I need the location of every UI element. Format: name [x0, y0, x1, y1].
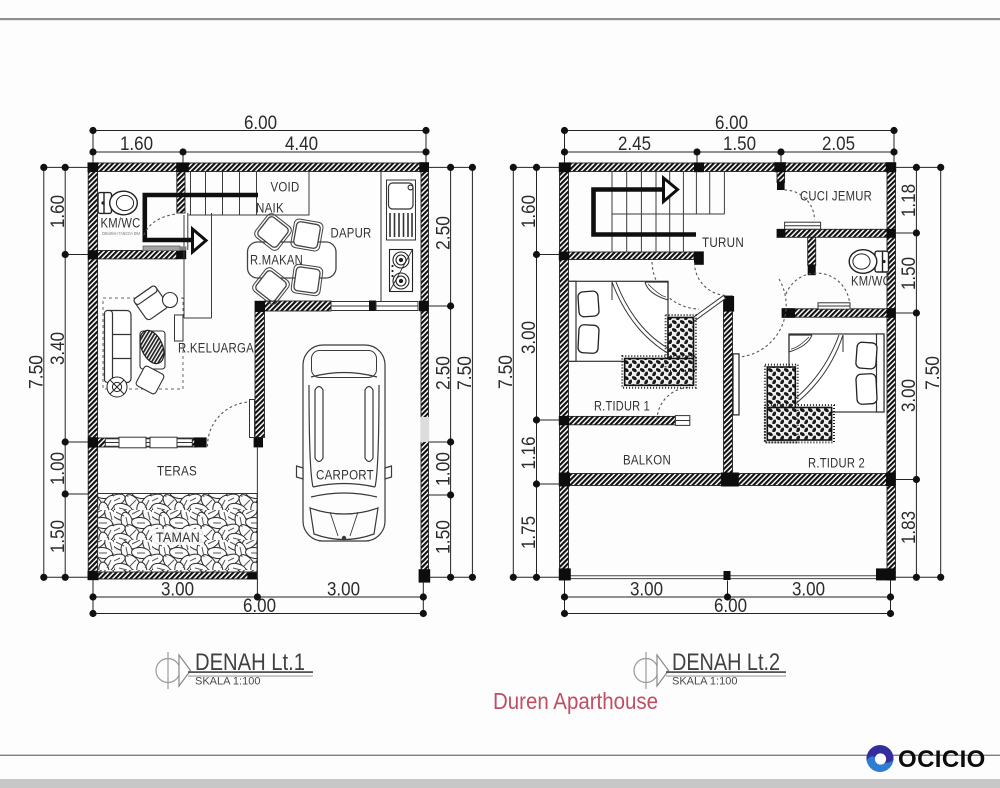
svg-text:3.40: 3.40 — [48, 332, 69, 365]
svg-text:3.00: 3.00 — [161, 580, 194, 601]
svg-text:1.60: 1.60 — [120, 134, 153, 155]
svg-text:7.50: 7.50 — [923, 356, 944, 390]
svg-text:1.50: 1.50 — [48, 520, 69, 553]
svg-text:6.00: 6.00 — [243, 596, 276, 617]
svg-text:1.50: 1.50 — [723, 134, 756, 155]
svg-text:2.50: 2.50 — [433, 356, 454, 390]
svg-text:7.50: 7.50 — [455, 356, 476, 390]
svg-text:DAPUR: DAPUR — [331, 226, 372, 241]
svg-text:1.60: 1.60 — [519, 195, 540, 228]
svg-text:1.60: 1.60 — [48, 195, 69, 228]
svg-text:CARPORT: CARPORT — [316, 468, 374, 483]
svg-text:R.MAKAN: R.MAKAN — [250, 253, 303, 268]
svg-text:1.00: 1.00 — [433, 452, 454, 486]
svg-text:6.00: 6.00 — [714, 596, 747, 617]
svg-text:R.TIDUR 2: R.TIDUR 2 — [808, 456, 865, 471]
svg-text:2.50: 2.50 — [433, 216, 454, 250]
svg-text:6.00: 6.00 — [715, 113, 748, 134]
svg-text:KM/WC: KM/WC — [851, 274, 891, 289]
svg-text:KM/WC: KM/WC — [101, 216, 141, 231]
svg-text:1.16: 1.16 — [519, 437, 540, 470]
svg-text:4.40: 4.40 — [285, 134, 318, 155]
svg-text:1.18: 1.18 — [899, 184, 920, 217]
svg-text:7.50: 7.50 — [26, 355, 47, 389]
svg-text:3.00: 3.00 — [899, 379, 920, 412]
svg-text:1.75: 1.75 — [519, 516, 540, 549]
svg-text:6.00: 6.00 — [244, 113, 277, 134]
svg-text:3.00: 3.00 — [792, 580, 825, 601]
svg-text:2.45: 2.45 — [618, 134, 651, 155]
svg-text:TERAS: TERAS — [157, 464, 197, 479]
svg-text:BALKON: BALKON — [623, 453, 671, 468]
svg-text:R.TIDUR 1: R.TIDUR 1 — [594, 399, 650, 414]
svg-text:1.50: 1.50 — [899, 257, 920, 290]
svg-text:3.00: 3.00 — [630, 580, 663, 601]
svg-text:3.00: 3.00 — [327, 580, 360, 601]
svg-text:SKALA 1:100: SKALA 1:100 — [195, 676, 260, 688]
svg-text:R.KELUARGA: R.KELUARGA — [178, 341, 254, 356]
svg-text:1.00: 1.00 — [48, 452, 69, 485]
svg-text:1.83: 1.83 — [899, 511, 920, 544]
svg-text:3.00: 3.00 — [519, 321, 540, 354]
svg-text:1.50: 1.50 — [433, 520, 454, 554]
svg-text:CUCI JEMUR: CUCI JEMUR — [800, 189, 872, 204]
svg-text:OCICIO: OCICIO — [898, 746, 986, 773]
svg-text:TAMAN: TAMAN — [156, 530, 200, 545]
svg-text:Duren Aparthouse: Duren Aparthouse — [493, 688, 658, 714]
svg-text:TURUN: TURUN — [702, 235, 744, 250]
svg-text:2.05: 2.05 — [822, 134, 855, 155]
svg-text:7.50: 7.50 — [496, 355, 517, 389]
svg-text:NAIK: NAIK — [256, 201, 284, 216]
svg-text:SKALA 1:100: SKALA 1:100 — [672, 676, 737, 688]
svg-text:VOID: VOID — [271, 180, 300, 195]
svg-text:DIBAWAH TANGGA DIM: DIBAWAH TANGGA DIM — [102, 231, 140, 236]
